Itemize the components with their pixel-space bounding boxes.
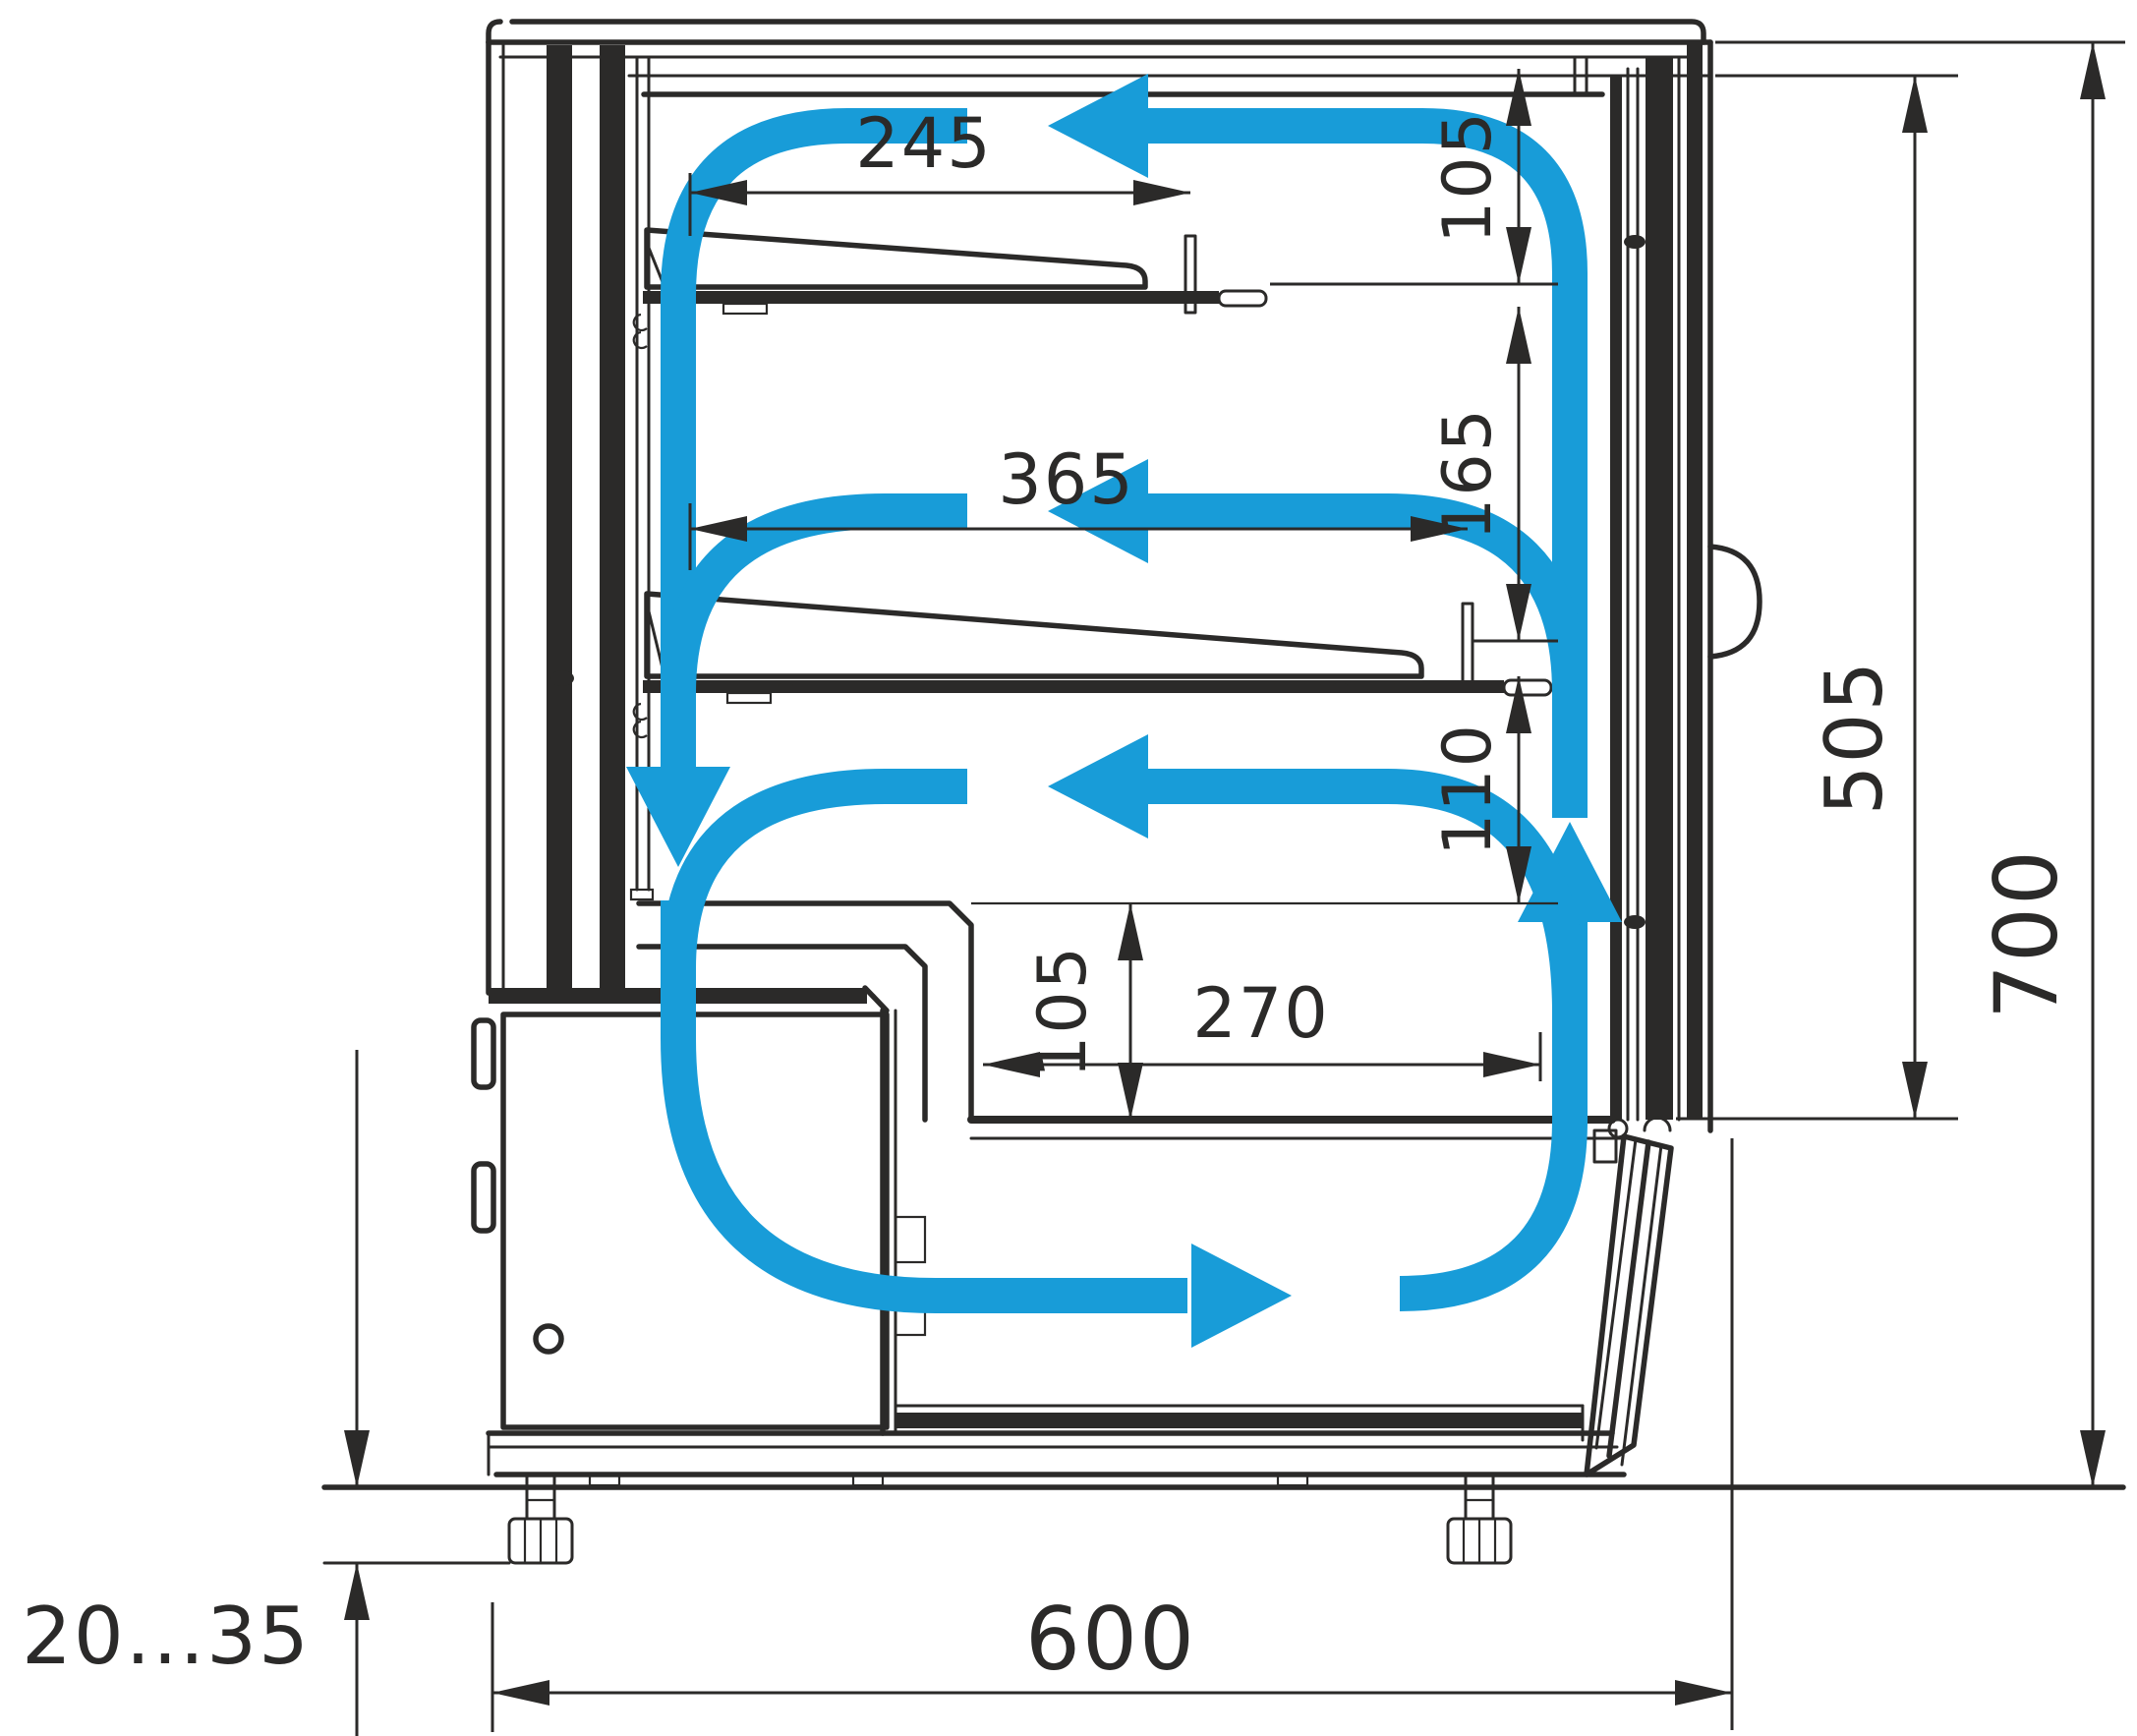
dim-label-600: 600 bbox=[1025, 1589, 1196, 1690]
dim-105-well: 105 bbox=[1024, 903, 1143, 1120]
back-wall bbox=[489, 42, 653, 993]
front-bumper-panel bbox=[1587, 1130, 1671, 1475]
airflow-arrow-right-icon bbox=[1191, 1244, 1292, 1348]
dim-label-105-top: 105 bbox=[1429, 110, 1507, 244]
glass-screw-bottom bbox=[1624, 915, 1646, 929]
airflow-arrow-left-lower-icon bbox=[1048, 734, 1148, 839]
glass-handle bbox=[1710, 547, 1760, 657]
dim-label-foot-range: 20...35 bbox=[22, 1591, 311, 1682]
front-glass bbox=[1609, 42, 1760, 1137]
hinge-top bbox=[474, 1020, 493, 1087]
hinge-bottom bbox=[474, 1164, 493, 1231]
shelf-top bbox=[634, 230, 1266, 348]
dim-label-165: 165 bbox=[1429, 407, 1507, 541]
dim-700: 700 bbox=[1715, 42, 2125, 1487]
dim-label-700: 700 bbox=[1976, 848, 2077, 1019]
dim-foot-range: 20...35 bbox=[22, 1050, 370, 1736]
shelf-middle bbox=[634, 594, 1551, 737]
airflow-branch-lower-return bbox=[678, 786, 967, 968]
dim-label-245: 245 bbox=[855, 103, 993, 184]
door-knob-hole bbox=[536, 1326, 561, 1352]
dim-label-110: 110 bbox=[1429, 723, 1507, 856]
airflow-front-rise bbox=[1400, 904, 1570, 1294]
dim-label-270: 270 bbox=[1192, 973, 1330, 1054]
dim-label-365: 365 bbox=[998, 439, 1135, 520]
glass-screw-top bbox=[1624, 235, 1646, 249]
airflow-dimension-drawing: 245 365 105 165 110 105 bbox=[0, 0, 2137, 1736]
dim-505: 505 bbox=[1676, 76, 1958, 1119]
canopy bbox=[489, 22, 1710, 94]
wall-screw bbox=[550, 670, 574, 686]
dim-105-top: 105 bbox=[1270, 69, 1558, 284]
airflow-arrow-left-top-icon bbox=[1048, 74, 1148, 178]
airflow-bottom-duct bbox=[678, 900, 1187, 1296]
base bbox=[489, 1433, 1624, 1485]
dim-label-505: 505 bbox=[1809, 660, 1900, 816]
machine-compartment bbox=[474, 988, 925, 1433]
